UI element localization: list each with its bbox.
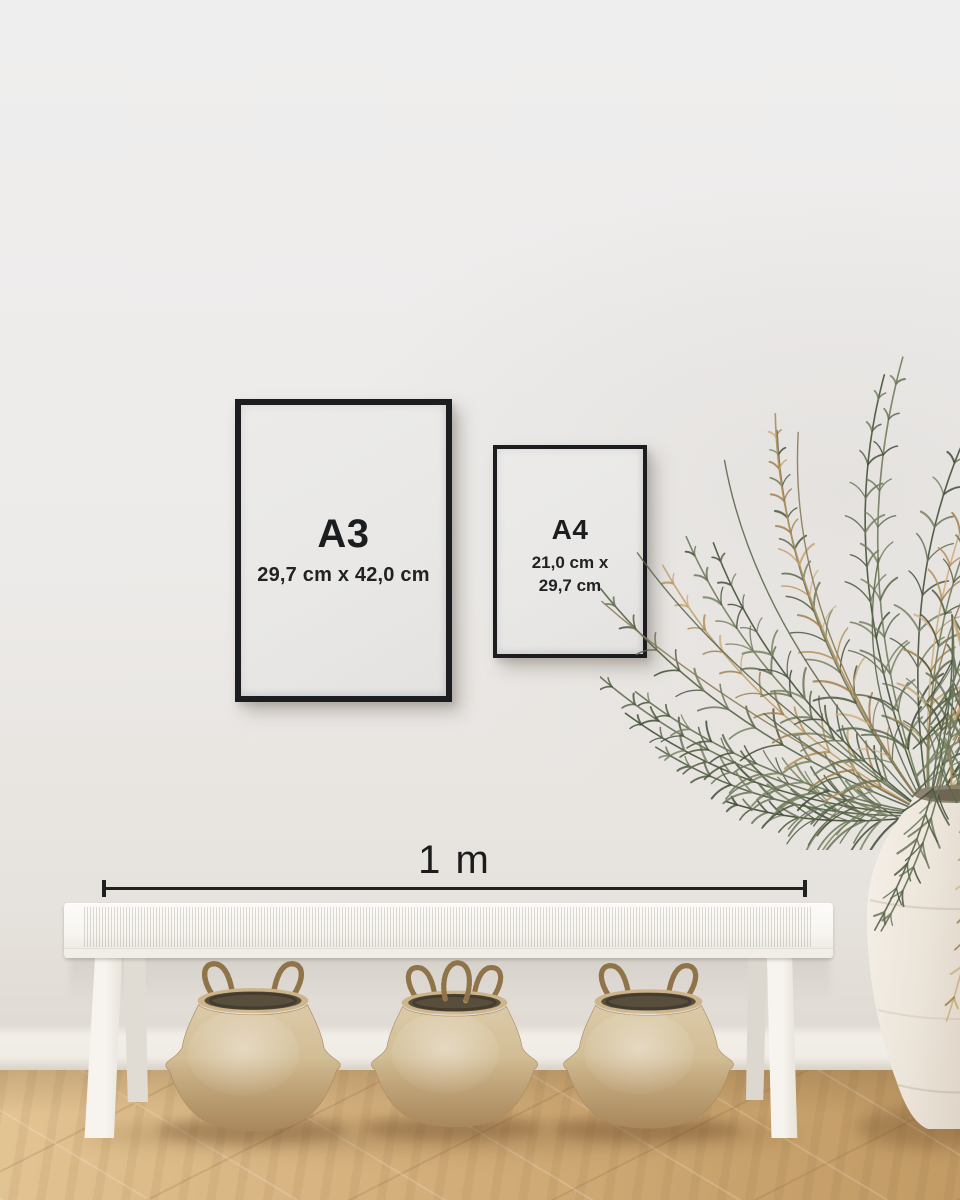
a3-size-label: A3 — [317, 514, 369, 554]
a3-dimensions: 29,7 cm x 42,0 cm — [257, 564, 429, 587]
baskets — [120, 948, 780, 1160]
basket-2 — [371, 963, 537, 1127]
scale-bar-line — [103, 887, 806, 890]
basket-1 — [166, 964, 340, 1131]
a3-paper: A3 29,7 cm x 42,0 cm — [241, 405, 446, 696]
a4-dimensions: 21,0 cm x 29,7 cm — [532, 552, 609, 597]
a4-size-label: A4 — [552, 516, 589, 544]
a3-poster-frame: A3 29,7 cm x 42,0 cm — [235, 399, 452, 702]
palm-frond-hanging — [870, 560, 960, 1180]
a4-dimensions-line2: 29,7 cm — [532, 575, 609, 597]
basket-3 — [564, 966, 734, 1129]
a4-dimensions-line1: 21,0 cm x — [532, 552, 609, 574]
size-guide-scene: A3 29,7 cm x 42,0 cm A4 21,0 cm x 29,7 c… — [0, 0, 960, 1200]
